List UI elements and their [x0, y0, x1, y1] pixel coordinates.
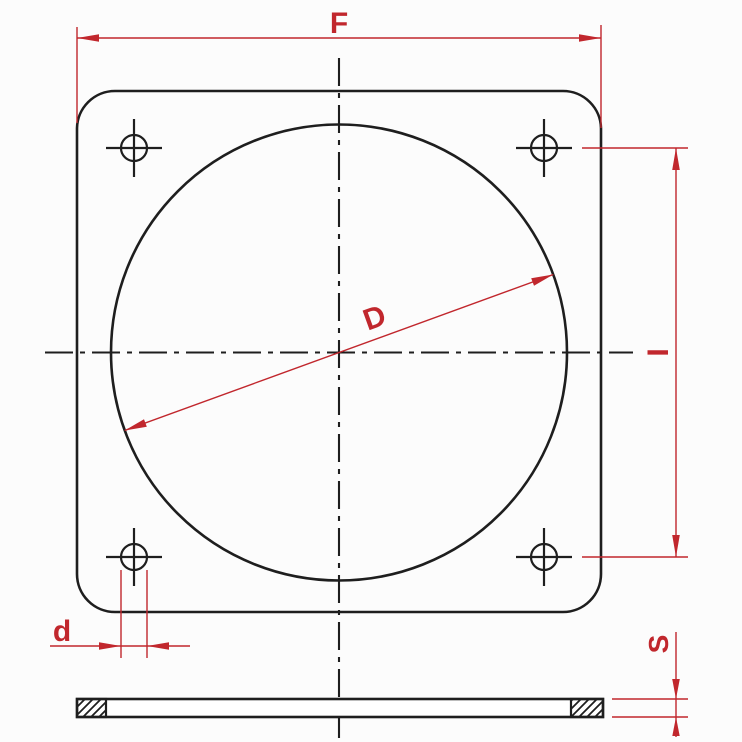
dim-label-d: d [53, 615, 71, 648]
arrowhead-upper-right-icon [531, 275, 553, 286]
dim-label-F: F [330, 7, 348, 40]
dim-label-I: I [642, 348, 675, 356]
arrowhead-lower-left-icon [125, 419, 147, 430]
arrowhead-down-icon [672, 679, 680, 699]
arrowhead-up-icon [672, 717, 679, 736]
flange-technical-drawing: F D I d S [0, 0, 742, 742]
dimension-S: S [612, 632, 688, 737]
dim-label-D: D [359, 299, 391, 337]
section-hatch-left [77, 699, 106, 717]
technical-drawing-page: F D I d S [0, 0, 742, 742]
bolt-hole-bottom-right [516, 528, 572, 586]
arrowhead-up-icon [672, 148, 680, 170]
bolt-hole-top-left [106, 119, 162, 177]
bolt-hole-bottom-left [106, 528, 162, 586]
arrowhead-down-icon [672, 535, 680, 557]
bolt-hole-top-right [516, 119, 572, 177]
arrowhead-left-icon [77, 34, 99, 42]
arrowhead-right-icon [99, 642, 121, 650]
section-hatch-right [571, 699, 603, 717]
dim-label-S: S [643, 635, 674, 654]
arrowhead-right-icon [579, 34, 601, 42]
arrowhead-left-icon [147, 642, 169, 650]
side-view-outline [77, 699, 603, 717]
dimension-d: d [50, 570, 190, 658]
side-view [77, 699, 603, 717]
